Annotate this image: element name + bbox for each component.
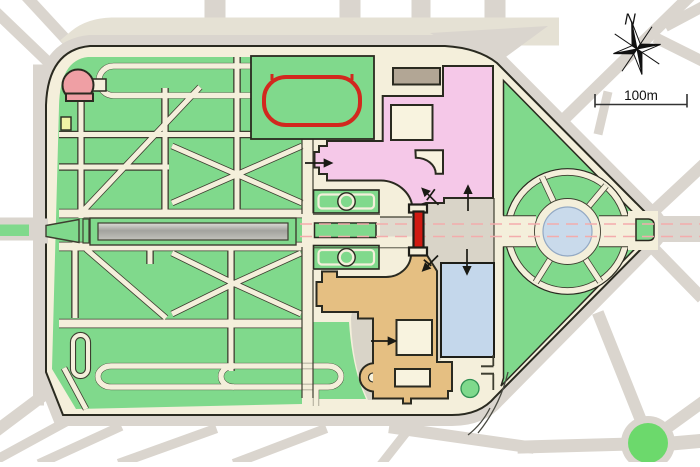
svg-text:100m: 100m <box>624 88 658 103</box>
svg-text:N: N <box>624 12 636 29</box>
